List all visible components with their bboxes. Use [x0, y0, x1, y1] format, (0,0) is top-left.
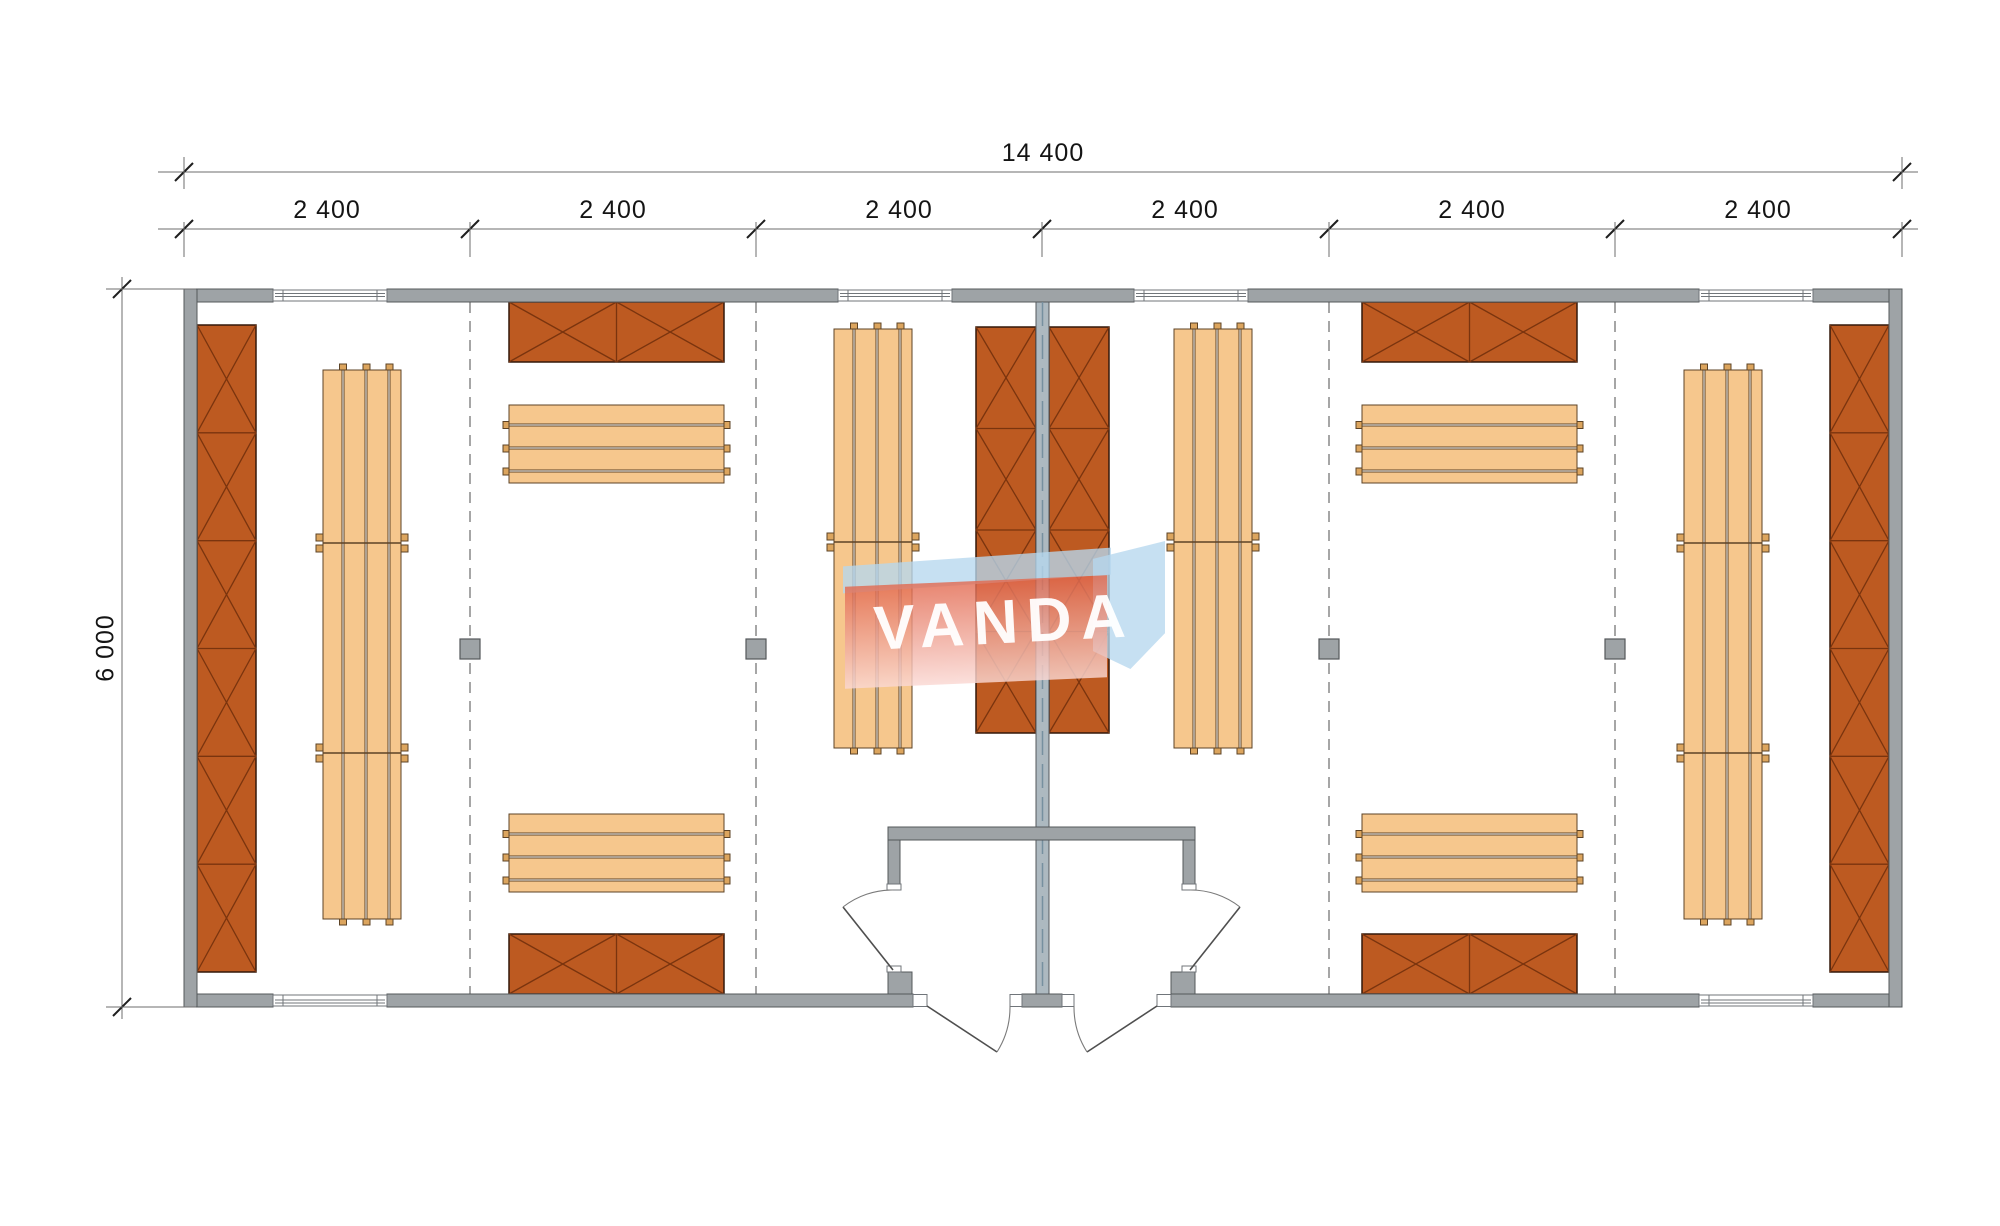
bench [1356, 814, 1583, 892]
bench-tab [1747, 364, 1754, 370]
bench-tab [827, 544, 834, 551]
interior-door-swing-arc [1190, 890, 1240, 907]
bench-plank [901, 329, 912, 748]
bench-tab [1762, 755, 1769, 762]
bench-plank [1684, 370, 1703, 919]
bench-tab [316, 755, 323, 762]
bench-tab [1214, 748, 1221, 754]
vestibule-wall-stub [1171, 972, 1195, 994]
overall-width-dimension-label: 14 400 [1002, 139, 1084, 168]
bench-tab [1237, 748, 1244, 754]
bench-tab [1577, 831, 1583, 838]
cross-box-cabinet [1830, 325, 1889, 972]
bench-tab [1356, 422, 1362, 429]
bench-plank [1362, 426, 1577, 447]
window-frame [1134, 290, 1248, 301]
bench-tab [1762, 545, 1769, 552]
bench-tab [1237, 323, 1244, 329]
bench-tab [1356, 831, 1362, 838]
window [273, 290, 387, 301]
bench-tab [1701, 364, 1708, 370]
bench-tab [1677, 755, 1684, 762]
exterior-wall-bottom [387, 994, 913, 1007]
bench [1167, 323, 1259, 754]
vestibule-wall-stub [1183, 840, 1195, 884]
bench-tab [503, 854, 509, 861]
bench-plank [1174, 329, 1193, 748]
bench-tab [1577, 854, 1583, 861]
bench-tab [316, 545, 323, 552]
bench-tab [724, 468, 730, 475]
bench-plank [1362, 405, 1577, 424]
bench-plank [344, 370, 365, 919]
bench-tab [724, 877, 730, 884]
bench-plank [1362, 472, 1577, 483]
door-jamb [887, 884, 901, 890]
floor-plan-drawing [0, 0, 2000, 1226]
window [1699, 290, 1813, 301]
cross-box-cabinet [1362, 934, 1577, 994]
bench-plank [509, 449, 724, 470]
window [273, 995, 387, 1006]
bench-tab [401, 534, 408, 541]
bench [1677, 364, 1769, 925]
bench-tab [1167, 544, 1174, 551]
vestibule-wall [888, 827, 1195, 840]
bench-plank [855, 329, 876, 748]
door-jamb [1182, 966, 1196, 972]
bench-tab [724, 422, 730, 429]
structural-post [460, 639, 480, 659]
bench-plank [1362, 449, 1577, 470]
bench-plank [1362, 835, 1577, 856]
bench-tab [363, 919, 370, 925]
structural-post [1319, 639, 1339, 659]
bench-plank [509, 881, 724, 892]
exterior-wall-top [1248, 289, 1699, 302]
exterior-wall-top [387, 289, 838, 302]
cross-box-cabinet [509, 302, 724, 362]
entrance-door-swing-arc [997, 1006, 1010, 1052]
window-frame [1699, 290, 1813, 301]
bench-tab [724, 831, 730, 838]
bench-tab [724, 854, 730, 861]
structural-post [746, 639, 766, 659]
cross-box-cabinet [197, 325, 256, 972]
bench [827, 323, 919, 754]
bench-tab [1762, 534, 1769, 541]
bench-plank [1241, 329, 1252, 748]
cross-box-cabinet [1049, 327, 1109, 733]
bench [1356, 405, 1583, 483]
structural-post [1605, 639, 1625, 659]
bench-tab [340, 364, 347, 370]
module-dimension-label: 2 400 [1438, 196, 1506, 225]
center-partition-wall [1036, 302, 1049, 994]
window [1699, 995, 1813, 1006]
door-jamb [887, 966, 901, 972]
bench-tab [503, 831, 509, 838]
module-dimension-label: 2 400 [293, 196, 361, 225]
bench-plank [509, 835, 724, 856]
bench-tab [1356, 468, 1362, 475]
bench-tab [1252, 533, 1259, 540]
bench-tab [874, 323, 881, 329]
module-dimension-label: 2 400 [865, 196, 933, 225]
bench-tab [1677, 534, 1684, 541]
bench-tab [851, 323, 858, 329]
bench-tab [340, 919, 347, 925]
bench-tab [503, 445, 509, 452]
entrance-door-swing-arc [1074, 1006, 1087, 1052]
bench-plank [1728, 370, 1749, 919]
window-frame [273, 290, 387, 301]
bench [503, 405, 730, 483]
cross-box-cabinet [976, 327, 1036, 733]
bench-tab [1677, 744, 1684, 751]
interior-door-leaf [1190, 907, 1240, 970]
interior-door-swing-arc [843, 890, 893, 907]
door-jamb [1010, 995, 1022, 1007]
exterior-wall-bottom [1022, 994, 1062, 1007]
bench-plank [1362, 814, 1577, 833]
bench-tab [316, 534, 323, 541]
bench-plank [1362, 881, 1577, 892]
bench-tab [1214, 323, 1221, 329]
bench-tab [874, 748, 881, 754]
bench-tab [897, 323, 904, 329]
vestibule-wall-stub [888, 972, 912, 994]
bench-plank [509, 405, 724, 424]
bench-plank [878, 329, 899, 748]
bench-tab [386, 364, 393, 370]
bench-tab [1191, 748, 1198, 754]
interior-door-leaf [843, 907, 893, 970]
bench-tab [503, 422, 509, 429]
bench-plank [834, 329, 853, 748]
bench-plank [509, 472, 724, 483]
exterior-wall-bottom [1171, 994, 1699, 1007]
exterior-wall-left [184, 289, 197, 1007]
bench-plank [509, 814, 724, 833]
bench-tab [851, 748, 858, 754]
bench-tab [1724, 364, 1731, 370]
bench-tab [1167, 533, 1174, 540]
bench-tab [401, 744, 408, 751]
module-dimension-label: 2 400 [1724, 196, 1792, 225]
overall-height-dimension-label: 6 000 [92, 614, 121, 682]
bench-plank [390, 370, 401, 919]
floor-plan-canvas: 14 400 2 400 2 400 2 400 2 400 2 400 2 4… [0, 0, 2000, 1226]
bench-tab [1701, 919, 1708, 925]
bench-tab [1356, 445, 1362, 452]
bench-tab [1762, 744, 1769, 751]
window [1134, 290, 1248, 301]
door-jamb [1182, 884, 1196, 890]
bench-tab [1577, 877, 1583, 884]
bench [503, 814, 730, 892]
bench-tab [912, 533, 919, 540]
bench-tab [1356, 854, 1362, 861]
door-jamb [1157, 995, 1171, 1007]
entrance-door-leaf [927, 1006, 997, 1052]
bench-tab [503, 877, 509, 884]
bench-tab [1747, 919, 1754, 925]
cross-box-cabinet [1362, 302, 1577, 362]
bench-tab [401, 545, 408, 552]
bench-tab [503, 468, 509, 475]
bench-plank [1195, 329, 1216, 748]
bench-tab [316, 744, 323, 751]
door-jamb [913, 995, 927, 1007]
bench-tab [1724, 919, 1731, 925]
bench [316, 364, 408, 925]
vestibule-wall-stub [888, 840, 900, 884]
window-frame [838, 290, 952, 301]
exterior-wall-right [1889, 289, 1902, 1007]
door-jamb [1062, 995, 1074, 1007]
bench-tab [1356, 877, 1362, 884]
cross-box-cabinet [509, 934, 724, 994]
bench-tab [724, 445, 730, 452]
module-dimension-label: 2 400 [1151, 196, 1219, 225]
bench-plank [1218, 329, 1239, 748]
bench-tab [827, 533, 834, 540]
bench-tab [1577, 422, 1583, 429]
exterior-wall-top [952, 289, 1134, 302]
bench-plank [1362, 858, 1577, 879]
bench-plank [367, 370, 388, 919]
bench-tab [363, 364, 370, 370]
bench-tab [1577, 468, 1583, 475]
bench-tab [1252, 544, 1259, 551]
bench-tab [1677, 545, 1684, 552]
bench-tab [386, 919, 393, 925]
bench-tab [912, 544, 919, 551]
bench-tab [1577, 445, 1583, 452]
module-dimension-label: 2 400 [579, 196, 647, 225]
bench-plank [509, 426, 724, 447]
bench-tab [401, 755, 408, 762]
bench-plank [323, 370, 342, 919]
bench-tab [897, 748, 904, 754]
bench-plank [1705, 370, 1726, 919]
entrance-door-leaf [1087, 1006, 1157, 1052]
bench-plank [1751, 370, 1762, 919]
bench-tab [1191, 323, 1198, 329]
window [838, 290, 952, 301]
bench-plank [509, 858, 724, 879]
